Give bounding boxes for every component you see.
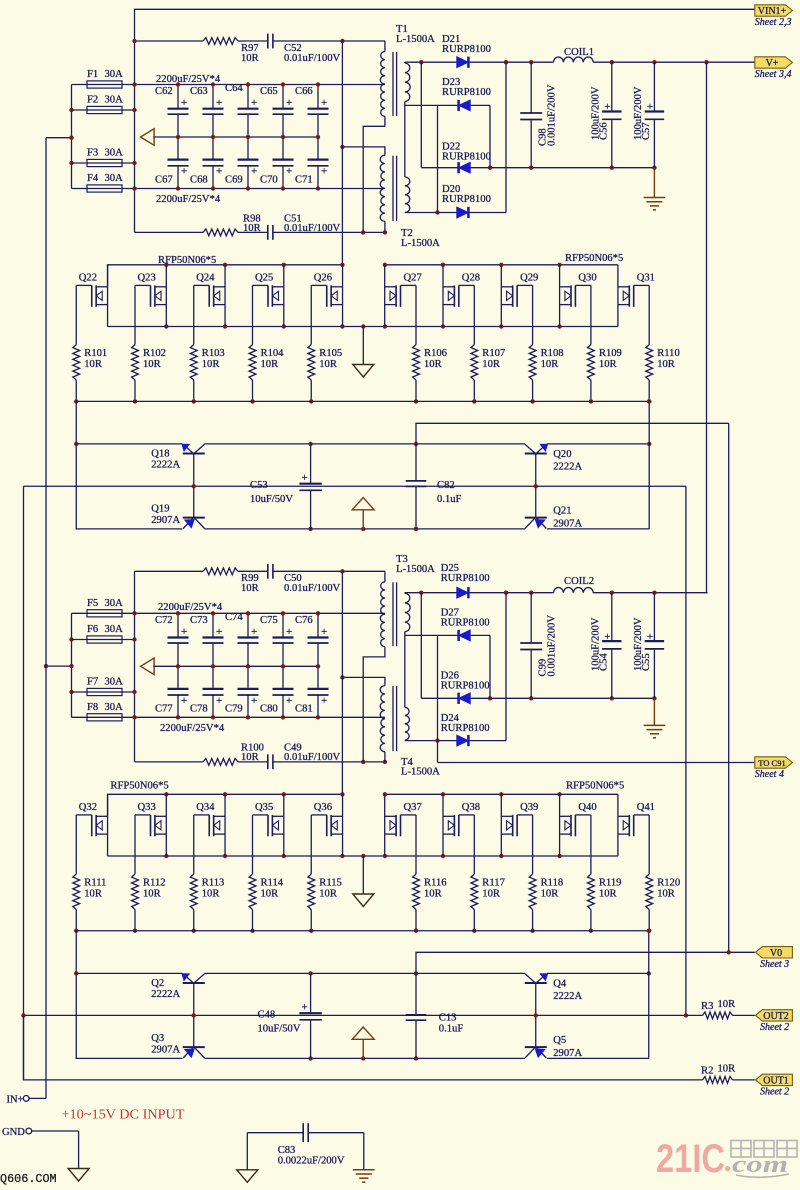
svg-text:10R: 10R xyxy=(243,223,262,234)
svg-text:Q38: Q38 xyxy=(462,802,480,813)
svg-text:R104: R104 xyxy=(261,348,285,359)
svg-text:C70: C70 xyxy=(260,175,278,186)
svg-text:+: + xyxy=(216,97,222,109)
svg-text:C63: C63 xyxy=(190,86,208,97)
svg-text:2200uF/25V*4: 2200uF/25V*4 xyxy=(156,194,221,205)
svg-text:10R: 10R xyxy=(202,359,221,370)
svg-text:+: + xyxy=(216,166,222,178)
svg-text:+: + xyxy=(647,631,653,643)
svg-text:Q40: Q40 xyxy=(578,802,596,813)
svg-text:C54: C54 xyxy=(599,653,610,671)
svg-text:R109: R109 xyxy=(599,348,622,359)
svg-text:C75: C75 xyxy=(260,615,278,626)
svg-text:C80: C80 xyxy=(260,704,278,715)
svg-text:C53: C53 xyxy=(250,480,268,491)
svg-text:C48: C48 xyxy=(258,1010,276,1021)
svg-text:2222A: 2222A xyxy=(553,991,582,1002)
svg-text:+: + xyxy=(181,97,187,109)
svg-text:R112: R112 xyxy=(143,878,166,889)
svg-text:+: + xyxy=(286,166,292,178)
svg-text:0.1uF: 0.1uF xyxy=(437,494,462,505)
svg-text:Sheet 3,4: Sheet 3,4 xyxy=(755,69,792,80)
svg-text:R103: R103 xyxy=(202,348,225,359)
svg-text:+10~15V DC INPUT: +10~15V DC INPUT xyxy=(62,1107,186,1122)
svg-text:Q22: Q22 xyxy=(79,272,97,283)
svg-text:C68: C68 xyxy=(190,175,208,186)
svg-text:R110: R110 xyxy=(657,348,680,359)
svg-text:10R: 10R xyxy=(261,359,280,370)
svg-text:10uF/50V: 10uF/50V xyxy=(258,1024,301,1035)
svg-text:Sheet 2: Sheet 2 xyxy=(760,1086,789,1097)
svg-text:C81: C81 xyxy=(295,704,313,715)
svg-text:10R: 10R xyxy=(599,889,618,900)
svg-text:10R: 10R xyxy=(241,583,260,594)
svg-text:OUT1: OUT1 xyxy=(763,1076,789,1087)
svg-text:Sheet 2,3: Sheet 2,3 xyxy=(755,17,792,28)
svg-text:10uF/50V: 10uF/50V xyxy=(250,494,293,505)
svg-text:F1: F1 xyxy=(87,69,98,80)
svg-text:10R: 10R xyxy=(319,889,338,900)
svg-text:RURP8100: RURP8100 xyxy=(442,152,491,163)
svg-text:Q5: Q5 xyxy=(553,1035,566,1046)
svg-text:Q37: Q37 xyxy=(404,802,422,813)
svg-text:F5: F5 xyxy=(87,598,98,609)
svg-text:+: + xyxy=(321,626,327,638)
svg-text:2907A: 2907A xyxy=(553,1048,582,1059)
svg-text:+: + xyxy=(604,631,610,643)
svg-text:R106: R106 xyxy=(424,348,447,359)
svg-text:L-1500A: L-1500A xyxy=(401,767,440,778)
svg-text:Q26: Q26 xyxy=(314,272,332,283)
svg-text:10R: 10R xyxy=(599,359,618,370)
svg-text:C76: C76 xyxy=(295,615,313,626)
svg-text:Q4: Q4 xyxy=(553,978,567,989)
svg-text:R108: R108 xyxy=(541,348,564,359)
svg-text:Q29: Q29 xyxy=(520,272,538,283)
svg-text:Q32: Q32 xyxy=(79,802,97,813)
svg-text:30A: 30A xyxy=(105,624,124,635)
svg-text:Q31: Q31 xyxy=(637,272,655,283)
svg-text:IN+: IN+ xyxy=(7,1095,24,1106)
svg-text:10R: 10R xyxy=(143,359,162,370)
svg-text:COIL2: COIL2 xyxy=(564,576,594,587)
svg-text:+: + xyxy=(286,626,292,638)
svg-text:+: + xyxy=(302,472,308,484)
svg-text:R101: R101 xyxy=(84,348,107,359)
svg-text:Q19: Q19 xyxy=(151,503,169,514)
svg-text:30A: 30A xyxy=(105,173,124,184)
svg-text:+: + xyxy=(251,626,257,638)
svg-text:C62: C62 xyxy=(155,86,173,97)
svg-text:0.01uF/100V: 0.01uF/100V xyxy=(284,53,341,64)
svg-text:2222A: 2222A xyxy=(151,989,180,1000)
svg-text:R114: R114 xyxy=(261,878,284,889)
svg-text:Q41: Q41 xyxy=(637,802,655,813)
svg-text:C65: C65 xyxy=(260,86,278,97)
svg-text:C77: C77 xyxy=(155,704,173,715)
svg-text:C56: C56 xyxy=(599,122,610,140)
svg-text:C64: C64 xyxy=(225,83,243,94)
svg-text:+: + xyxy=(181,166,187,178)
svg-text:OUT2: OUT2 xyxy=(763,1011,789,1022)
svg-text:10R: 10R xyxy=(541,359,560,370)
svg-text:C74: C74 xyxy=(225,612,243,623)
svg-text:TO C91: TO C91 xyxy=(758,758,785,768)
svg-text:Q21: Q21 xyxy=(553,505,571,516)
svg-text:2222A: 2222A xyxy=(151,460,180,471)
svg-text:RFP50N06*5: RFP50N06*5 xyxy=(566,781,624,792)
svg-text:+: + xyxy=(286,695,292,707)
svg-text:F2: F2 xyxy=(87,95,98,106)
svg-text:RURP8100: RURP8100 xyxy=(441,681,490,692)
svg-text:Q36: Q36 xyxy=(314,802,332,813)
svg-text:L-1500A: L-1500A xyxy=(396,34,435,45)
svg-text:RFP50N06*5: RFP50N06*5 xyxy=(565,253,623,264)
svg-text:RURP8100: RURP8100 xyxy=(442,194,491,205)
svg-text:+: + xyxy=(321,166,327,178)
svg-text:C57: C57 xyxy=(641,122,652,140)
svg-text:C79: C79 xyxy=(225,704,243,715)
svg-text:Sheet 4: Sheet 4 xyxy=(755,769,784,780)
svg-text:Q34: Q34 xyxy=(196,802,215,813)
svg-text:Sheet 2: Sheet 2 xyxy=(760,1022,789,1033)
svg-text:0.0022uF/200V: 0.0022uF/200V xyxy=(278,1156,345,1167)
svg-text:2907A: 2907A xyxy=(553,519,582,530)
svg-text:Q20: Q20 xyxy=(553,449,571,460)
svg-text:F4: F4 xyxy=(87,173,99,184)
svg-text:L-1500A: L-1500A xyxy=(396,564,435,575)
svg-text:R105: R105 xyxy=(319,348,342,359)
svg-text:Q23: Q23 xyxy=(138,272,156,283)
svg-text:Q2: Q2 xyxy=(151,978,164,989)
svg-text:Q35: Q35 xyxy=(255,802,273,813)
svg-text:0.01uF/100V: 0.01uF/100V xyxy=(284,223,341,234)
svg-text:10R: 10R xyxy=(241,752,260,763)
svg-text:10R: 10R xyxy=(482,889,501,900)
svg-text:10R: 10R xyxy=(84,889,103,900)
svg-text:30A: 30A xyxy=(105,69,124,80)
svg-text:10R: 10R xyxy=(657,359,676,370)
svg-text:R107: R107 xyxy=(482,348,505,359)
svg-text:10R: 10R xyxy=(424,889,443,900)
svg-text:+: + xyxy=(647,101,653,113)
svg-text:R118: R118 xyxy=(541,878,564,889)
svg-text:F8: F8 xyxy=(87,702,98,713)
svg-text:+: + xyxy=(251,695,257,707)
svg-text:10R: 10R xyxy=(143,889,162,900)
svg-text:Q28: Q28 xyxy=(462,272,480,283)
svg-text:10R: 10R xyxy=(482,359,501,370)
svg-text:V+: V+ xyxy=(766,58,779,69)
svg-text:10R: 10R xyxy=(541,889,560,900)
svg-text:30A: 30A xyxy=(105,148,124,159)
svg-text:10R: 10R xyxy=(424,359,443,370)
svg-text:10R: 10R xyxy=(241,53,260,64)
svg-text:Q18: Q18 xyxy=(151,448,169,459)
svg-text:F6: F6 xyxy=(87,624,98,635)
svg-text:F3: F3 xyxy=(87,148,98,159)
svg-text:Q3: Q3 xyxy=(151,1033,164,1044)
svg-text:10R: 10R xyxy=(84,359,103,370)
svg-text:10R: 10R xyxy=(319,359,338,370)
svg-text:R3: R3 xyxy=(701,1001,713,1012)
svg-text:0.01uF/100V: 0.01uF/100V xyxy=(284,583,341,594)
svg-text:C73: C73 xyxy=(190,615,208,626)
svg-text:C83: C83 xyxy=(278,1145,296,1156)
svg-text:COIL1: COIL1 xyxy=(564,47,594,58)
svg-text:+: + xyxy=(251,97,257,109)
svg-text:+: + xyxy=(181,626,187,638)
svg-text:2907A: 2907A xyxy=(151,1044,180,1055)
svg-text:RFP50N06*5: RFP50N06*5 xyxy=(110,781,168,792)
svg-text:Q33: Q33 xyxy=(138,802,156,813)
svg-text:Q606.COM: Q606.COM xyxy=(0,1172,57,1185)
svg-text:0.001uF/200V: 0.001uF/200V xyxy=(547,84,558,146)
svg-text:0.1uF: 0.1uF xyxy=(439,1024,464,1035)
svg-text:+: + xyxy=(181,695,187,707)
svg-text:R2: R2 xyxy=(701,1066,713,1077)
svg-text:F7: F7 xyxy=(87,677,98,688)
svg-text:+: + xyxy=(286,97,292,109)
svg-text:30A: 30A xyxy=(105,95,124,106)
svg-text:C13: C13 xyxy=(439,1013,457,1024)
svg-text:30A: 30A xyxy=(105,677,124,688)
svg-text:C66: C66 xyxy=(295,86,313,97)
svg-text:0.001uF/200V: 0.001uF/200V xyxy=(547,615,558,677)
svg-text:VIN1+: VIN1+ xyxy=(758,6,787,17)
svg-text:R119: R119 xyxy=(599,878,622,889)
svg-text:Q39: Q39 xyxy=(520,802,538,813)
svg-text:+: + xyxy=(604,101,610,113)
svg-text:10R: 10R xyxy=(657,889,676,900)
svg-text:C78: C78 xyxy=(190,704,208,715)
svg-text:30A: 30A xyxy=(105,598,124,609)
svg-text:C82: C82 xyxy=(437,480,455,491)
svg-text:GND: GND xyxy=(2,1127,25,1138)
svg-text:RURP8100: RURP8100 xyxy=(441,573,490,584)
svg-text:R113: R113 xyxy=(202,878,225,889)
svg-text:Sheet 3: Sheet 3 xyxy=(760,959,789,970)
svg-text:V0: V0 xyxy=(770,948,782,959)
svg-text:2200uF/25V*4: 2200uF/25V*4 xyxy=(160,723,225,734)
svg-text:10R: 10R xyxy=(202,889,221,900)
svg-text:+: + xyxy=(251,166,257,178)
svg-text:C71: C71 xyxy=(295,175,313,186)
svg-text:RURP8100: RURP8100 xyxy=(441,618,490,629)
svg-text:+: + xyxy=(302,1002,308,1014)
svg-text:+: + xyxy=(216,626,222,638)
svg-text:Q30: Q30 xyxy=(578,272,596,283)
svg-text:10R: 10R xyxy=(261,889,280,900)
svg-text:30A: 30A xyxy=(105,702,124,713)
svg-text:2222A: 2222A xyxy=(553,462,582,473)
svg-text:Q24: Q24 xyxy=(196,272,215,283)
svg-text:C69: C69 xyxy=(225,175,243,186)
svg-text:L-1500A: L-1500A xyxy=(401,238,440,249)
svg-text:R111: R111 xyxy=(84,878,106,889)
svg-text:10R: 10R xyxy=(718,1064,737,1075)
svg-text:Q27: Q27 xyxy=(404,272,422,283)
svg-text:C67: C67 xyxy=(155,175,173,186)
svg-text:R116: R116 xyxy=(424,878,447,889)
svg-text:RURP8100: RURP8100 xyxy=(442,87,491,98)
svg-text:21IC: 21IC xyxy=(656,1137,725,1181)
svg-text:2907A: 2907A xyxy=(151,515,180,526)
svg-text:RURP8100: RURP8100 xyxy=(442,44,491,55)
svg-text:10R: 10R xyxy=(718,999,737,1010)
svg-text:RURP8100: RURP8100 xyxy=(441,723,490,734)
svg-text:+: + xyxy=(321,695,327,707)
svg-text:R117: R117 xyxy=(482,878,505,889)
svg-text:C55: C55 xyxy=(641,653,652,671)
svg-text:+: + xyxy=(321,97,327,109)
svg-text:0.01uF/100V: 0.01uF/100V xyxy=(284,752,341,763)
svg-text:C72: C72 xyxy=(155,615,173,626)
svg-text:+: + xyxy=(216,695,222,707)
svg-text:R102: R102 xyxy=(143,348,166,359)
svg-text:R120: R120 xyxy=(657,878,680,889)
svg-text:Q25: Q25 xyxy=(255,272,273,283)
svg-text:R115: R115 xyxy=(319,878,342,889)
